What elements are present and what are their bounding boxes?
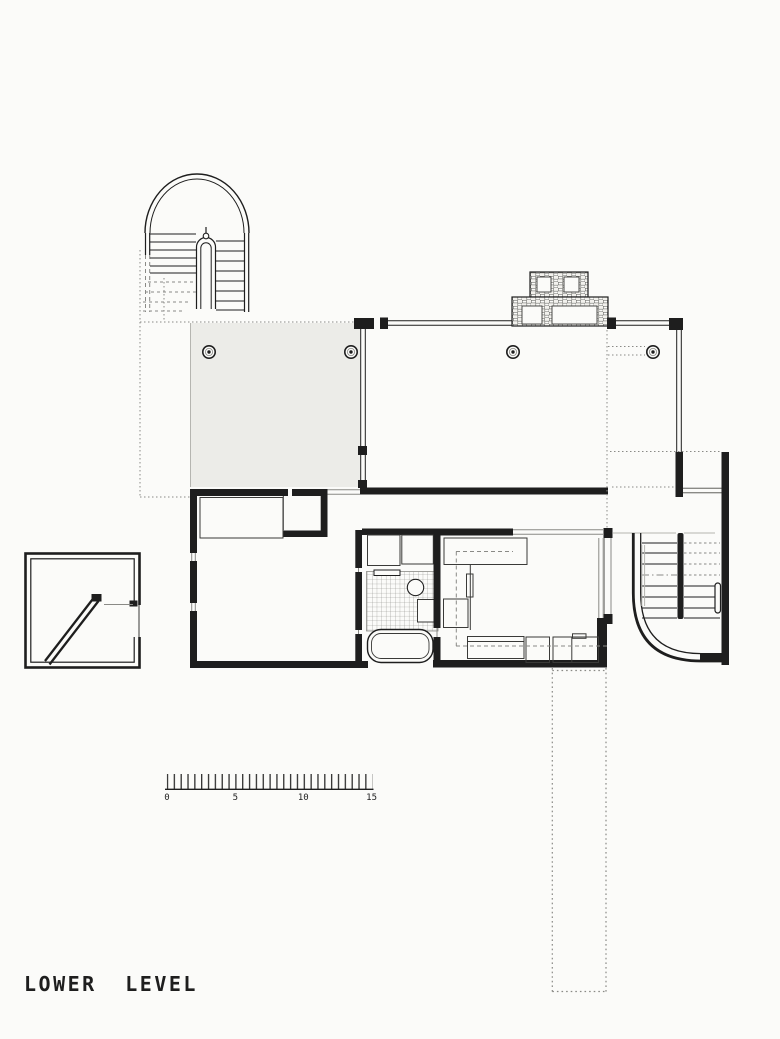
built-in-storage [200, 498, 283, 539]
column [203, 346, 215, 358]
west-window-wall [190, 496, 197, 668]
laundry-unit [402, 535, 434, 564]
stair-treads-right [216, 241, 244, 310]
spiral-stair-tower [143, 174, 249, 322]
terrace-deck [140, 250, 360, 497]
living-room [358, 329, 720, 533]
firebox-opening [552, 306, 597, 324]
floor-plan-sheet: 0 5 10 15 LOWER LEVEL [0, 0, 780, 1039]
stair-treads-left [150, 234, 196, 273]
column [647, 346, 659, 358]
south-bearing-wall [360, 488, 608, 495]
column [507, 346, 519, 358]
lower-level-plan-drawing: 0 5 10 15 [0, 0, 780, 1039]
flue-opening [537, 277, 551, 292]
chimney-fireplace [512, 272, 608, 326]
scale-label-15: 15 [366, 793, 377, 803]
east-exterior-wall [722, 452, 730, 665]
handrail [715, 583, 721, 613]
bedroom [190, 489, 368, 668]
entry-walkway-dotted [552, 668, 606, 992]
kitchen-south-wall [433, 660, 607, 668]
stair-divider-wall [678, 533, 684, 619]
kitchen-counter [444, 538, 599, 663]
east-window-wall [676, 330, 684, 497]
column [345, 346, 357, 358]
plan-title: LOWER LEVEL [24, 972, 198, 996]
overhead-edge-dotted [607, 330, 720, 533]
scale-label-5: 5 [233, 793, 238, 803]
scale-label-0: 0 [164, 793, 169, 803]
scale-bar: 0 5 10 15 [164, 774, 377, 803]
scale-label-10: 10 [298, 793, 309, 803]
sink-basin [407, 579, 423, 595]
firebox-opening [522, 306, 542, 324]
counter-island [468, 637, 525, 659]
main-stair [633, 533, 729, 662]
bathroom [355, 529, 440, 669]
stair-treads-down [642, 543, 677, 618]
outbuilding [26, 554, 142, 668]
oven-appliance [444, 599, 469, 628]
stair-treads-up-hidden [684, 543, 720, 575]
stair-treads-left-hidden [143, 282, 196, 311]
entry-wing [604, 452, 730, 665]
shelf [374, 570, 400, 576]
flue-opening [564, 277, 579, 292]
counter-overhang-dashed [456, 552, 607, 647]
cooktop [467, 574, 474, 597]
south-wall [190, 661, 368, 668]
newel-post [203, 233, 209, 239]
closet [283, 496, 328, 537]
kitchen [433, 529, 607, 668]
laundry-unit [368, 535, 401, 566]
diagonal-ramp-wall [45, 598, 99, 665]
